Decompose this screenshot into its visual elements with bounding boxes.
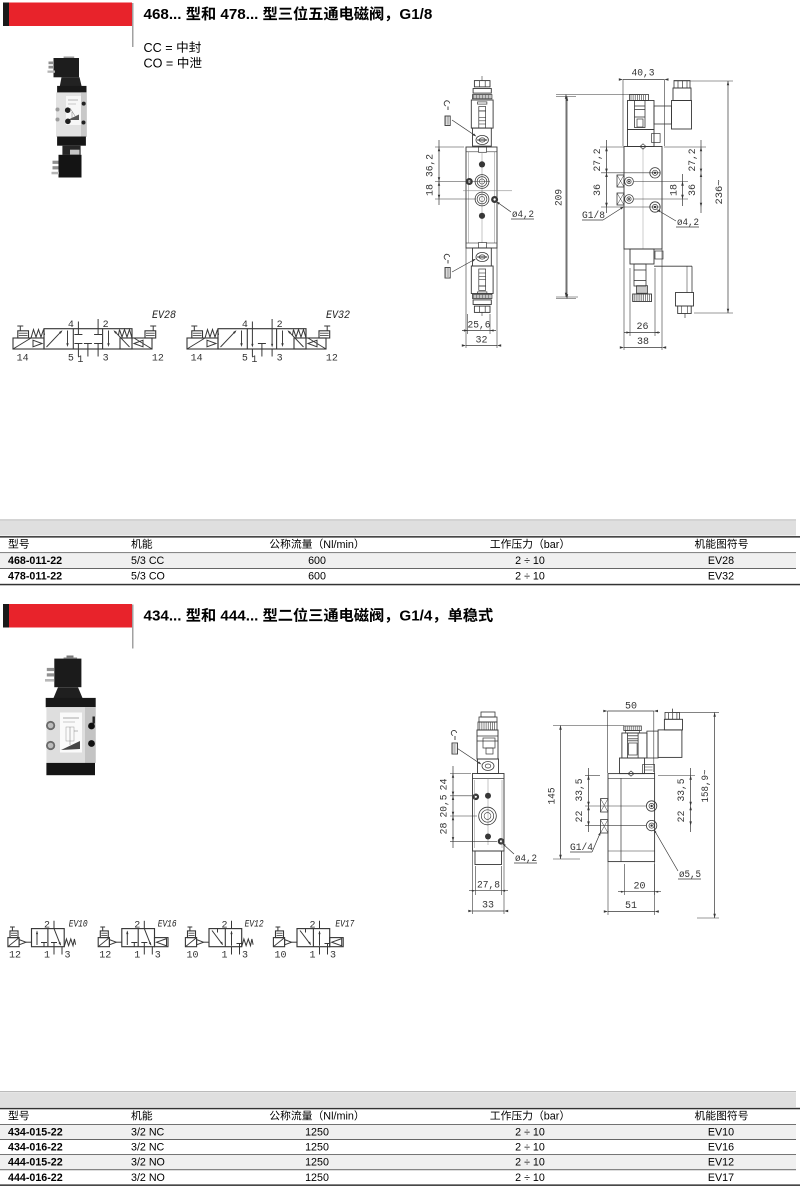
svg-text:1250: 1250 xyxy=(305,1142,329,1154)
svg-text:209: 209 xyxy=(554,189,566,206)
svg-text:EV32: EV32 xyxy=(326,310,350,322)
svg-text:434-016-22: 434-016-22 xyxy=(8,1142,63,1154)
svg-text:1250: 1250 xyxy=(305,1172,329,1184)
svg-text:EV12: EV12 xyxy=(245,919,264,931)
svg-text:CC =: CC = xyxy=(144,41,177,55)
svg-text:1: 1 xyxy=(251,355,257,366)
svg-text:bar: bar xyxy=(544,539,560,551)
svg-text:Nl/min: Nl/min xyxy=(323,1111,354,1123)
svg-text:27,2: 27,2 xyxy=(593,149,604,172)
svg-text:EV17: EV17 xyxy=(335,919,355,931)
svg-text:24: 24 xyxy=(440,779,451,791)
svg-text:1: 1 xyxy=(44,951,50,962)
svg-text:36: 36 xyxy=(688,184,699,196)
svg-text:478-011-22: 478-011-22 xyxy=(8,571,62,583)
svg-text:bar: bar xyxy=(544,1111,560,1123)
svg-text:10: 10 xyxy=(275,951,287,962)
svg-text:600: 600 xyxy=(308,555,326,567)
svg-text:27,8: 27,8 xyxy=(477,880,500,892)
svg-text:1250: 1250 xyxy=(305,1157,329,1169)
svg-text:12: 12 xyxy=(152,354,164,365)
svg-text:2 ÷ 10: 2 ÷ 10 xyxy=(515,555,545,567)
svg-text:3: 3 xyxy=(277,354,283,365)
svg-text:33,5: 33,5 xyxy=(677,779,688,802)
svg-text:4: 4 xyxy=(242,320,248,331)
svg-text:2 ÷ 10: 2 ÷ 10 xyxy=(515,1127,545,1139)
svg-text:33,5: 33,5 xyxy=(575,779,586,802)
svg-text:22: 22 xyxy=(575,811,586,823)
svg-text:468...: 468... xyxy=(144,6,186,23)
svg-text:51: 51 xyxy=(625,900,637,912)
svg-text:14: 14 xyxy=(191,354,203,365)
svg-text:EV32: EV32 xyxy=(708,571,734,583)
svg-text:444-016-22: 444-016-22 xyxy=(8,1172,63,1184)
svg-text:3/2 NO: 3/2 NO xyxy=(131,1172,165,1184)
svg-text:2: 2 xyxy=(309,921,315,932)
svg-text:600: 600 xyxy=(308,571,326,583)
svg-text:3: 3 xyxy=(103,354,109,365)
svg-text:3: 3 xyxy=(65,951,71,962)
svg-text:28: 28 xyxy=(440,823,451,835)
svg-text:EV10: EV10 xyxy=(708,1127,734,1139)
svg-text:3/2 NO: 3/2 NO xyxy=(131,1157,165,1169)
svg-text:444...: 444... xyxy=(216,608,262,625)
svg-text:EV28: EV28 xyxy=(708,555,734,567)
svg-text:1250: 1250 xyxy=(305,1127,329,1139)
svg-text:1: 1 xyxy=(309,951,315,962)
svg-text:40,3: 40,3 xyxy=(632,68,655,80)
svg-text:12: 12 xyxy=(99,951,111,962)
svg-text:3: 3 xyxy=(155,951,161,962)
svg-text:468-011-22: 468-011-22 xyxy=(8,555,62,567)
svg-text:G1/8: G1/8 xyxy=(399,6,432,23)
svg-text:36,2: 36,2 xyxy=(426,154,437,177)
svg-text:5: 5 xyxy=(68,354,74,365)
svg-text:EV16: EV16 xyxy=(708,1142,734,1154)
svg-text:478...: 478... xyxy=(216,6,262,23)
svg-text:CO =: CO = xyxy=(144,57,177,71)
svg-text:12: 12 xyxy=(9,951,21,962)
svg-text:18: 18 xyxy=(670,184,681,196)
svg-text:33: 33 xyxy=(482,900,494,912)
svg-text:EV17: EV17 xyxy=(708,1172,734,1184)
svg-text:22: 22 xyxy=(677,811,688,823)
svg-text:38: 38 xyxy=(637,336,649,348)
svg-text:2: 2 xyxy=(134,921,140,932)
svg-text:18: 18 xyxy=(426,184,437,196)
svg-text:434-015-22: 434-015-22 xyxy=(8,1127,63,1139)
svg-text:14: 14 xyxy=(17,354,29,365)
svg-text:20: 20 xyxy=(634,881,646,893)
svg-text:3/2 NC: 3/2 NC xyxy=(131,1142,165,1154)
svg-text:26: 26 xyxy=(637,321,649,333)
svg-text:32: 32 xyxy=(476,335,488,347)
svg-text:5: 5 xyxy=(242,354,248,365)
svg-text:1: 1 xyxy=(77,355,83,366)
svg-text:2 ÷ 10: 2 ÷ 10 xyxy=(515,571,545,583)
svg-text:EV16: EV16 xyxy=(158,919,177,931)
svg-text:36: 36 xyxy=(593,184,604,196)
svg-text:27,2: 27,2 xyxy=(688,149,699,172)
svg-text:25,6: 25,6 xyxy=(468,320,491,332)
svg-text:444-015-22: 444-015-22 xyxy=(8,1157,63,1169)
svg-text:EV28: EV28 xyxy=(152,310,176,322)
svg-text:2: 2 xyxy=(277,320,283,331)
svg-text:1: 1 xyxy=(221,951,227,962)
svg-text:434...: 434... xyxy=(144,608,186,625)
svg-text:145: 145 xyxy=(547,788,559,805)
svg-text:3: 3 xyxy=(242,951,248,962)
svg-text:2 ÷ 10: 2 ÷ 10 xyxy=(515,1157,545,1169)
svg-text:2 ÷ 10: 2 ÷ 10 xyxy=(515,1172,545,1184)
svg-text:2: 2 xyxy=(44,921,50,932)
svg-text:10: 10 xyxy=(187,951,199,962)
svg-text:2: 2 xyxy=(103,320,109,331)
svg-text:G1/4: G1/4 xyxy=(399,608,432,625)
svg-text:20,5: 20,5 xyxy=(440,795,451,818)
svg-text:EV10: EV10 xyxy=(69,919,88,931)
svg-text:158,9~: 158,9~ xyxy=(701,770,712,803)
svg-text:2 ÷ 10: 2 ÷ 10 xyxy=(515,1142,545,1154)
svg-text:12: 12 xyxy=(326,354,338,365)
svg-text:3/2 NC: 3/2 NC xyxy=(131,1127,165,1139)
svg-text:Nl/min: Nl/min xyxy=(323,539,354,551)
svg-text:EV12: EV12 xyxy=(708,1157,734,1169)
svg-text:1: 1 xyxy=(134,951,140,962)
svg-text:5/3 CO: 5/3 CO xyxy=(131,571,165,583)
svg-text:236~: 236~ xyxy=(715,180,726,205)
svg-text:2: 2 xyxy=(221,921,227,932)
svg-text:5/3 CC: 5/3 CC xyxy=(131,555,165,567)
svg-text:4: 4 xyxy=(68,320,74,331)
svg-text:3: 3 xyxy=(330,951,336,962)
